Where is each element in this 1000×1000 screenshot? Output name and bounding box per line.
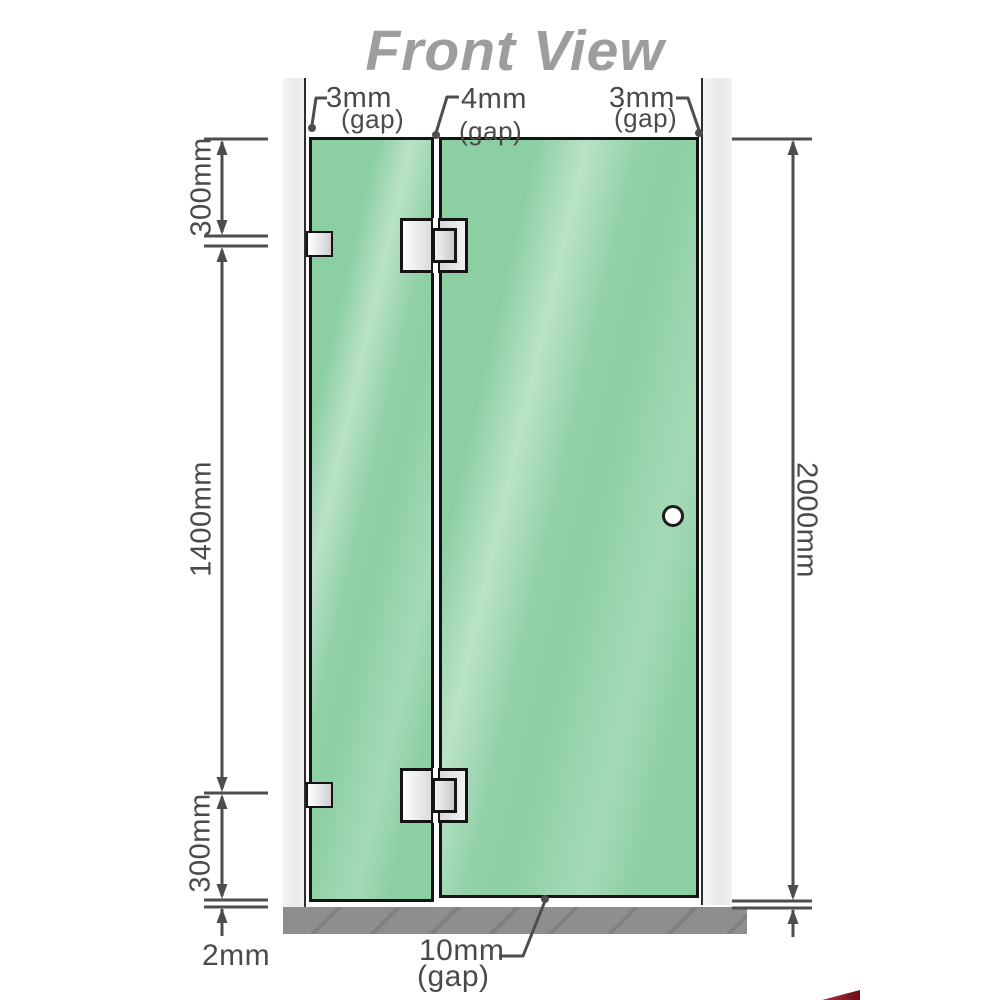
diagram-title: Front View: [350, 22, 680, 82]
gap-label-bottom-unit: (gap): [417, 960, 490, 994]
dim-label-left-top: 300mm: [186, 137, 219, 236]
door-handle: [662, 505, 684, 527]
dim-label-left-bottom: 300mm: [185, 793, 218, 892]
floor-base-bar: [283, 907, 747, 934]
left-wall-channel: [283, 78, 306, 908]
gap-label-top-middle-unit: (gap): [459, 116, 522, 147]
gap-label-top-left-unit: (gap): [341, 104, 404, 135]
logo-red-sliver: [822, 990, 860, 1000]
dim-label-floor: 2mm: [202, 939, 270, 973]
wall-bracket-bottom: [306, 782, 333, 808]
hinge-tab: [432, 778, 457, 813]
front-view-diagram: Front View: [0, 0, 1000, 1000]
gap-label-top-right-unit: (gap): [614, 103, 677, 134]
gap-label-top-middle-value: 4mm: [461, 83, 527, 116]
dim-label-right: 2000mm: [790, 462, 823, 578]
hinge-tab: [432, 228, 457, 263]
right-wall-channel: [701, 78, 732, 905]
wall-bracket-top: [306, 231, 333, 257]
door-glass-panel: [439, 137, 699, 898]
hinge-top: [400, 218, 468, 273]
hinge-bottom: [400, 768, 468, 823]
dim-label-left-middle: 1400mm: [186, 461, 219, 577]
